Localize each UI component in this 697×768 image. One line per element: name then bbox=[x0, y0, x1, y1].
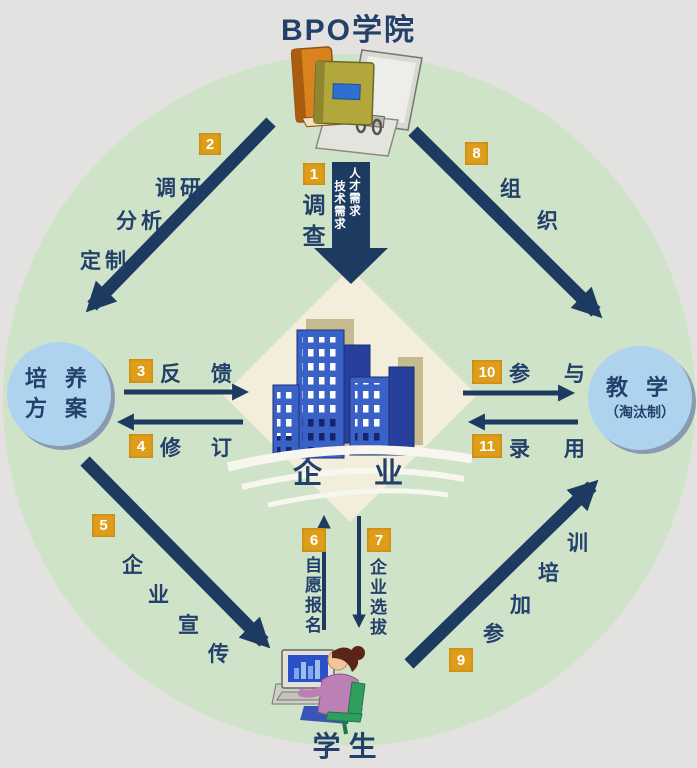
join-char-4: 训 bbox=[567, 527, 588, 557]
analysis-label: 分析 bbox=[116, 205, 166, 235]
join-char-1: 参 bbox=[483, 618, 504, 648]
enterprise-label: 企 业 bbox=[293, 450, 425, 492]
tech-need-label: 技术需求 bbox=[331, 180, 347, 230]
selection-label: 企业选拔 bbox=[364, 558, 389, 638]
join-char-3: 培 bbox=[538, 557, 559, 587]
promo-char-4: 传 bbox=[208, 638, 229, 668]
badge-8: 8 bbox=[465, 142, 488, 165]
books-illustration bbox=[270, 42, 475, 164]
research-label: 调研 bbox=[155, 172, 205, 202]
training-plan-node: 培 养 方 案 bbox=[7, 342, 111, 446]
join-char-2: 加 bbox=[510, 589, 531, 619]
survey-label: 调查 bbox=[295, 193, 329, 255]
talent-need-label: 人才需求 bbox=[346, 167, 362, 217]
training-plan-line1: 培 养 bbox=[25, 364, 93, 394]
promo-char-3: 宣 bbox=[178, 609, 199, 639]
badge-11: 11 bbox=[472, 434, 502, 458]
badge-7: 7 bbox=[367, 528, 391, 552]
student-illustration bbox=[252, 640, 397, 735]
badge-2: 2 bbox=[199, 133, 221, 155]
teaching-subline: （淘汰制） bbox=[605, 403, 675, 423]
diagram-canvas: BPO学院 学生 企 业 培 养 方 案 教 学 （淘汰制） 1 2 3 4 5… bbox=[0, 0, 697, 768]
promo-char-1: 企 bbox=[122, 549, 143, 579]
badge-10: 10 bbox=[472, 360, 502, 384]
organize-char-2: 织 bbox=[537, 205, 558, 235]
feedback-label: 反 馈 bbox=[160, 358, 244, 388]
signup-label: 自愿报名 bbox=[299, 556, 324, 636]
badge-9: 9 bbox=[449, 648, 473, 672]
promo-char-2: 业 bbox=[148, 579, 169, 609]
hire-label: 录 用 bbox=[509, 433, 599, 463]
customize-label: 定制 bbox=[80, 245, 130, 275]
revise-label: 修 订 bbox=[160, 432, 244, 462]
badge-5: 5 bbox=[92, 514, 115, 537]
page-title: BPO学院 bbox=[0, 5, 697, 49]
participate-label: 参 与 bbox=[509, 358, 599, 388]
badge-4: 4 bbox=[129, 434, 153, 458]
badge-1: 1 bbox=[303, 163, 325, 185]
olive-book-icon bbox=[314, 61, 374, 125]
training-plan-line2: 方 案 bbox=[25, 394, 93, 424]
teaching-line1: 教 学 bbox=[606, 373, 674, 403]
arrow-5-promotion bbox=[85, 461, 264, 642]
teaching-node: 教 学 （淘汰制） bbox=[588, 346, 692, 450]
student-label: 学生 bbox=[0, 725, 697, 765]
badge-3: 3 bbox=[129, 359, 153, 383]
badge-6: 6 bbox=[302, 528, 326, 552]
organize-char-1: 组 bbox=[500, 173, 521, 203]
